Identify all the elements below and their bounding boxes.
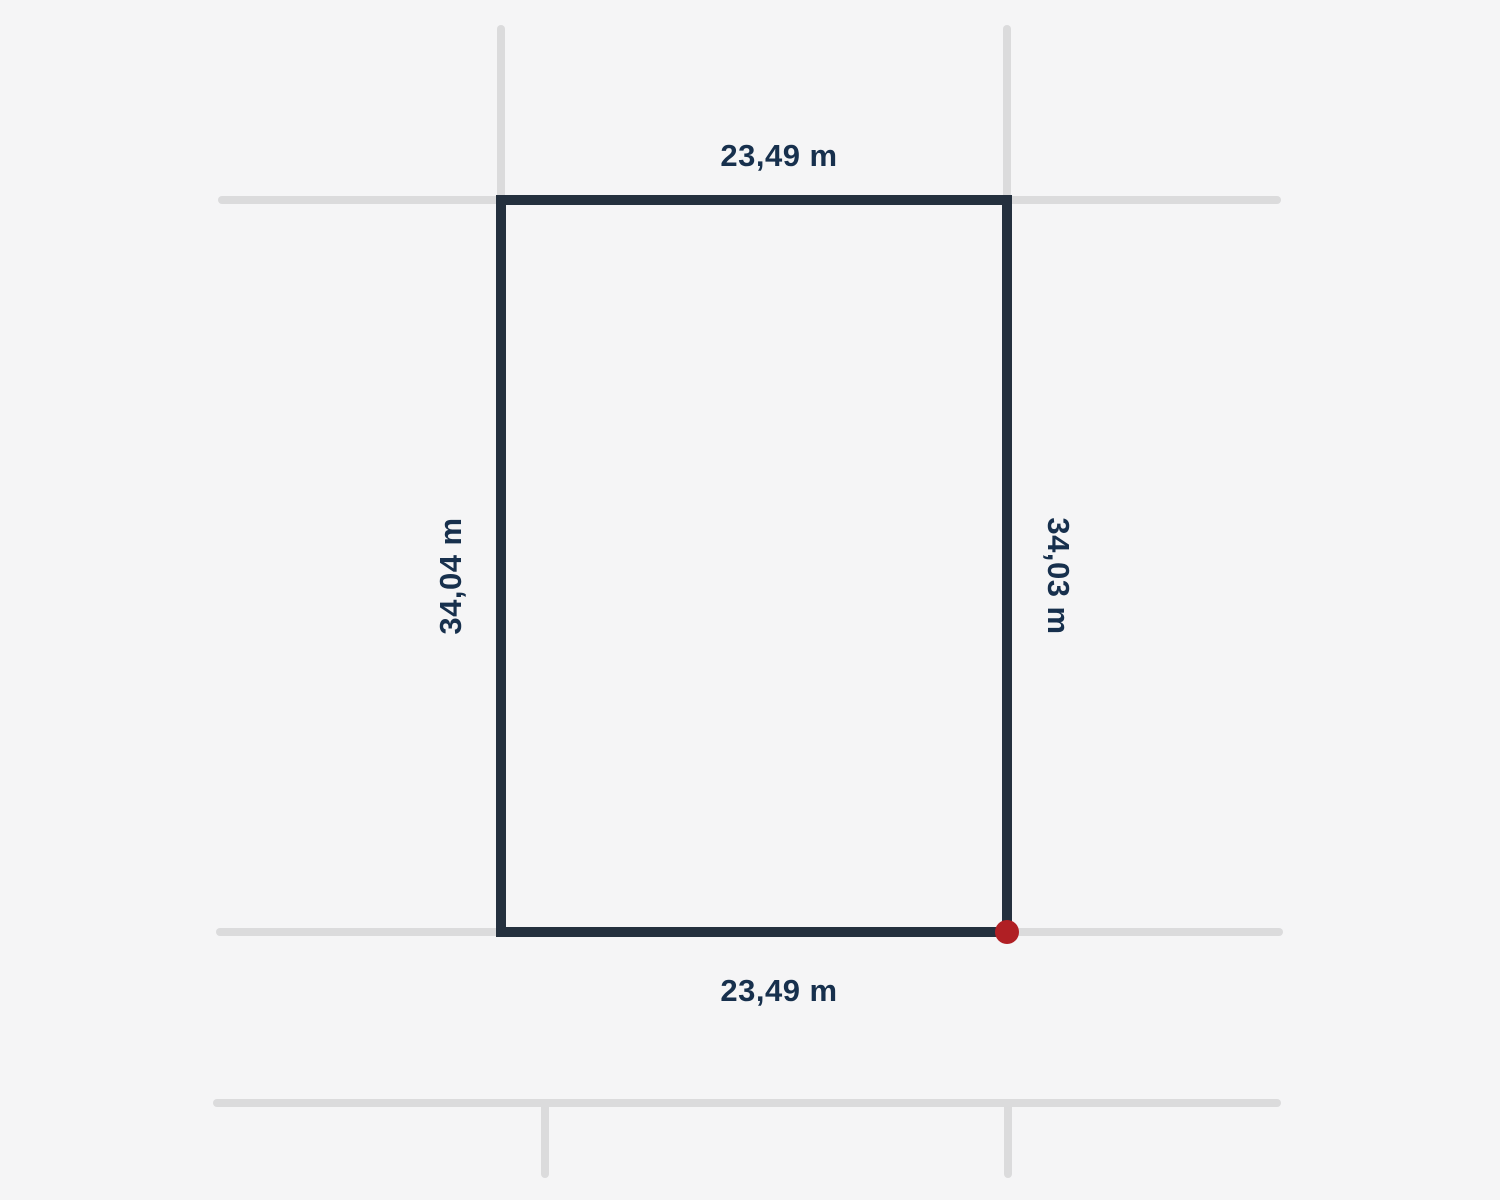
- context-line-lower-horizontal: [213, 1099, 1281, 1107]
- context-line-top-right-vertical: [1003, 25, 1011, 200]
- dimension-label-bottom: 23,49 m: [720, 973, 837, 1009]
- context-line-bottom-left-horizontal: [216, 928, 502, 936]
- context-line-top-right-horizontal: [1007, 196, 1281, 204]
- context-line-top-left-vertical: [497, 25, 505, 200]
- dimension-label-top: 23,49 m: [720, 138, 837, 174]
- parcel-diagram: 23,49 m 23,49 m 34,04 m 34,03 m: [0, 0, 1500, 1200]
- context-line-lower-tick-left: [541, 1103, 549, 1178]
- context-line-lower-tick-right: [1004, 1103, 1012, 1178]
- corner-marker-dot: [995, 920, 1019, 944]
- dimension-label-right: 34,03 m: [1040, 517, 1076, 634]
- context-line-top-left-horizontal: [218, 196, 502, 204]
- dimension-label-left: 34,04 m: [433, 517, 469, 634]
- parcel-outline: [496, 195, 1012, 937]
- context-line-bottom-right-horizontal: [1007, 928, 1283, 936]
